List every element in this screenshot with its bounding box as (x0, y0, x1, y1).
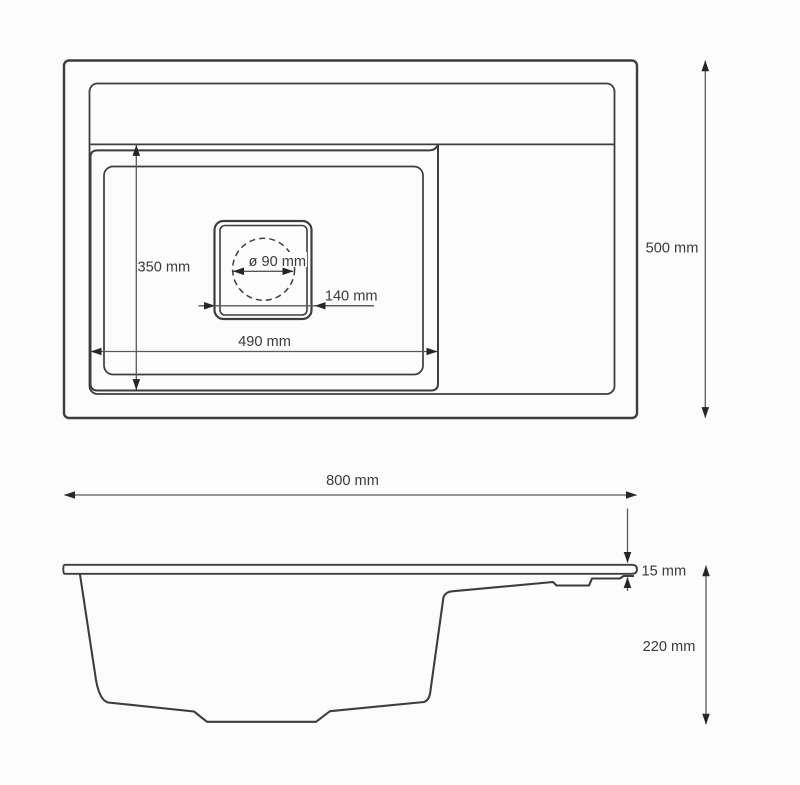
svg-text:220 mm: 220 mm (643, 639, 696, 655)
svg-text:ø 90 mm: ø 90 mm (249, 254, 307, 270)
svg-text:500 mm: 500 mm (646, 240, 699, 256)
svg-text:350 mm: 350 mm (138, 259, 191, 275)
svg-text:15 mm: 15 mm (642, 563, 687, 579)
svg-text:800 mm: 800 mm (326, 473, 379, 489)
svg-text:140 mm: 140 mm (325, 289, 378, 305)
svg-text:490 mm: 490 mm (238, 334, 291, 350)
